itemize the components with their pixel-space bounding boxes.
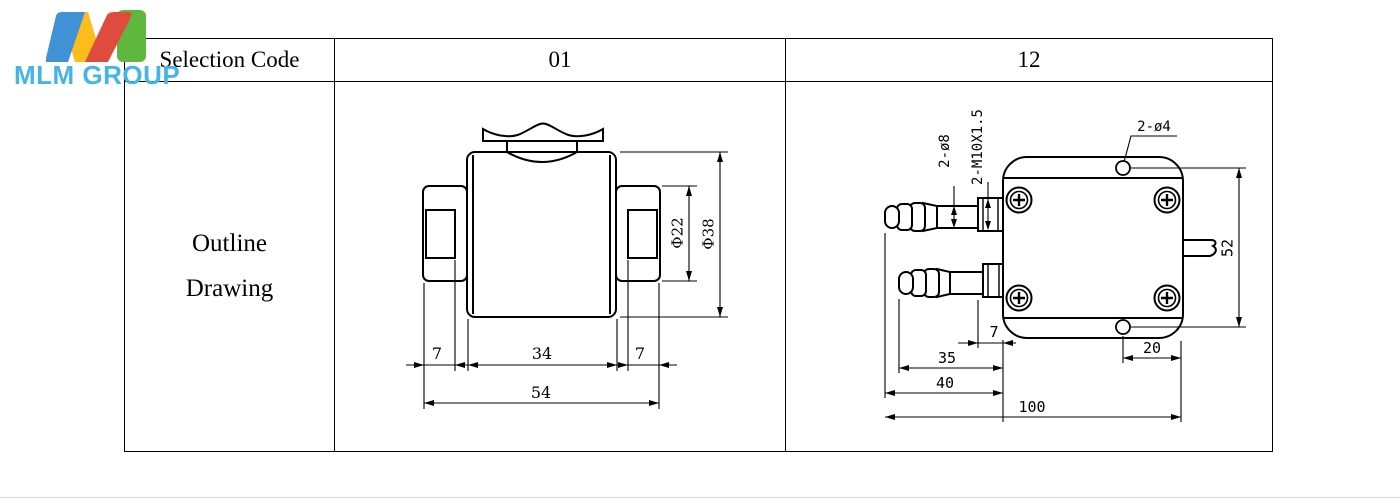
page-bottom-rule bbox=[0, 497, 1400, 498]
dim-54-text: 54 bbox=[531, 383, 551, 402]
dim-34-text: 34 bbox=[532, 344, 552, 363]
dim-7-left-text: 7 bbox=[432, 344, 442, 363]
cap-neck bbox=[507, 141, 577, 152]
dim-35-text: 35 bbox=[938, 349, 956, 367]
barb-fitting-lower bbox=[899, 264, 1003, 297]
dim-52-text: 52 bbox=[1218, 239, 1236, 257]
mounting-hole-top bbox=[1116, 161, 1130, 175]
header-code-12: 12 bbox=[786, 39, 1272, 82]
label-2o4-text: 2-ø4 bbox=[1137, 119, 1171, 135]
barb-fitting-upper bbox=[885, 198, 1003, 231]
label-m10-text: 2-M10X1.5 bbox=[970, 109, 986, 185]
row-label-line1: Outline bbox=[192, 230, 267, 258]
dim-7-text: 7 bbox=[989, 323, 998, 341]
corner-screw bbox=[1155, 188, 1180, 213]
corner-screw bbox=[1007, 188, 1032, 213]
corner-screw bbox=[1007, 286, 1032, 311]
outline-drawing-12: 2-ø8 2-M10X1.5 2-ø4 52 7 35 40 100 20 bbox=[855, 95, 1280, 430]
mlm-group-logo: MLM GROUP bbox=[0, 0, 220, 100]
port-left bbox=[426, 210, 455, 258]
mounting-hole-bottom bbox=[1116, 320, 1130, 334]
dim-40-text: 40 bbox=[936, 374, 954, 392]
transmitter-body bbox=[1003, 157, 1183, 338]
outline-drawing-01: Φ22 Φ38 7 34 7 54 bbox=[395, 113, 740, 415]
dim-20-text: 20 bbox=[1143, 339, 1161, 357]
port-right bbox=[628, 210, 657, 258]
logo-text: MLM GROUP bbox=[14, 60, 180, 91]
header-code-01: 01 bbox=[335, 39, 786, 82]
sensor-body bbox=[467, 152, 616, 317]
cap-plate bbox=[483, 124, 603, 142]
dim-phi22-text: Φ22 bbox=[668, 217, 686, 248]
page: Selection Code 01 12 Outline Drawing MLM… bbox=[0, 0, 1400, 500]
label-2o8-text: 2-ø8 bbox=[937, 134, 953, 168]
row-label-line2: Drawing bbox=[186, 275, 273, 303]
corner-screw bbox=[1155, 286, 1180, 311]
side-port-stub bbox=[1183, 240, 1216, 256]
dim-7-right-text: 7 bbox=[635, 344, 645, 363]
logo-m-icon bbox=[46, 8, 150, 66]
dim-phi38-text: Φ38 bbox=[699, 218, 717, 249]
row-label-outline-drawing: Outline Drawing bbox=[125, 82, 335, 451]
dim-100-text: 100 bbox=[1018, 398, 1045, 416]
